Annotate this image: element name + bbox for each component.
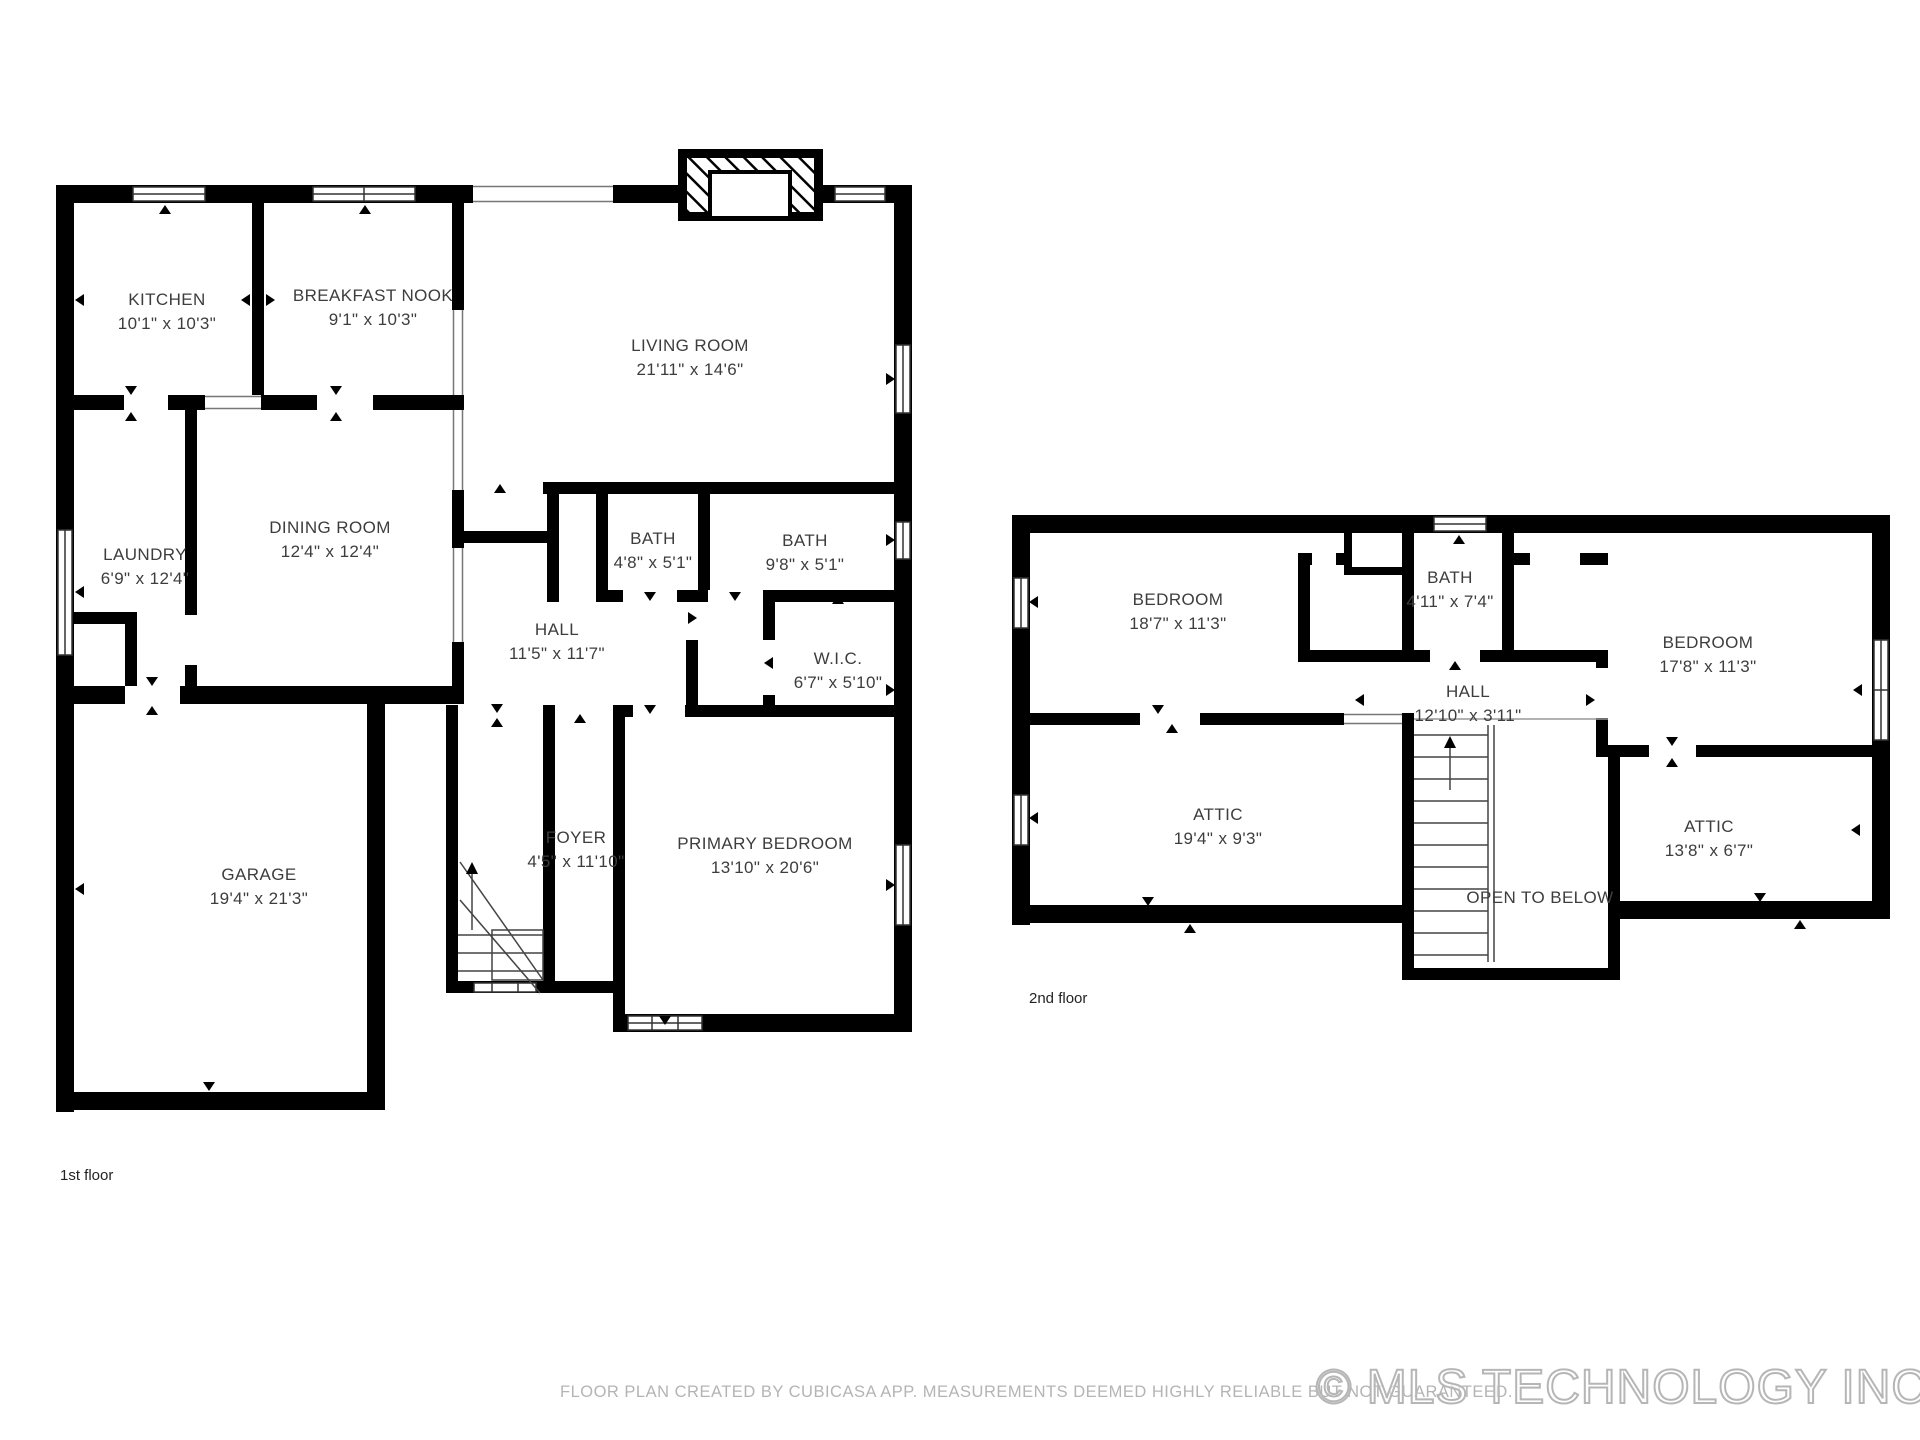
second-floor-passage-openings	[1344, 713, 1402, 725]
first-floor-label: 1st floor	[60, 1167, 113, 1184]
floor-plan-drawing	[0, 0, 1920, 1440]
room-label-living-room: LIVING ROOM21'11" x 14'6"	[631, 334, 749, 382]
room-label-attic-right: ATTIC13'8" x 6'7"	[1665, 815, 1754, 863]
floor-plan-page: KITCHEN10'1" x 10'3" BREAKFAST NOOK9'1" …	[0, 0, 1920, 1440]
staircase-second-floor	[1414, 719, 1608, 962]
fireplace-chimney	[678, 149, 823, 221]
room-label-primary-bedroom: PRIMARY BEDROOM13'10" x 20'6"	[677, 832, 852, 880]
room-label-bath-large: BATH9'8" x 5'1"	[766, 529, 845, 577]
room-label-bath-small: BATH4'8" x 5'1"	[614, 527, 693, 575]
staircase-first-floor	[458, 862, 543, 993]
mls-watermark: © MLS TECHNOLOGY INC 2025	[1316, 1360, 1920, 1415]
second-floor-label: 2nd floor	[1029, 990, 1087, 1007]
room-label-garage: GARAGE19'4" x 21'3"	[210, 863, 308, 911]
room-label-hall-second: HALL12'10" x 3'11"	[1414, 680, 1521, 728]
room-label-foyer: FOYER4'5" x 11'10"	[527, 826, 624, 874]
room-label-wic: W.I.C.6'7" x 5'10"	[794, 647, 883, 695]
room-label-attic-left: ATTIC19'4" x 9'3"	[1174, 803, 1263, 851]
room-label-open-to-below: OPEN TO BELOW	[1466, 886, 1613, 910]
room-label-breakfast-nook: BREAKFAST NOOK9'1" x 10'3"	[293, 284, 453, 332]
room-label-laundry: LAUNDRY6'9" x 12'4"	[101, 543, 190, 591]
room-label-kitchen: KITCHEN10'1" x 10'3"	[118, 288, 216, 336]
room-label-dining-room: DINING ROOM12'4" x 12'4"	[269, 516, 391, 564]
room-label-bath-second: BATH4'11" x 7'4"	[1406, 566, 1493, 614]
room-label-bedroom-right: BEDROOM17'8" x 11'3"	[1659, 631, 1756, 679]
door-direction-arrows	[75, 205, 1862, 1091]
room-label-hall-first: HALL11'5" x 11'7"	[509, 618, 605, 666]
room-label-bedroom-left: BEDROOM18'7" x 11'3"	[1129, 588, 1226, 636]
